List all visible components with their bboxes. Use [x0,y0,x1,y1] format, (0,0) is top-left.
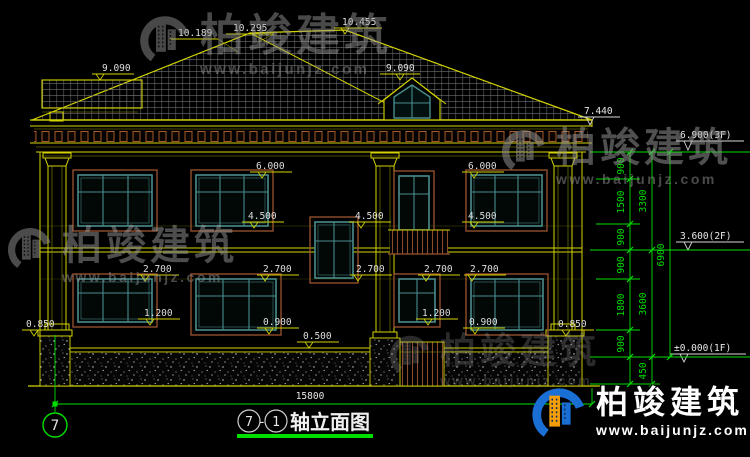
dim-1800: 1800 [616,293,627,316]
stair-window [310,217,358,283]
elev-sill-2f-right: 4.500 [468,211,497,222]
elev-win-top-1f-c: 2.700 [424,264,453,275]
elev-win-top-1f-b: 2.700 [263,264,292,275]
balcony-railing-2f [388,230,450,254]
dim-900-b: 900 [616,228,627,245]
elev-ridge-c: 10.455 [342,17,376,28]
foundation [28,352,600,386]
window-2f-left [73,170,157,231]
elev-floor2: 3.600(2F) [680,231,731,242]
cornice [30,120,592,152]
elev-sill-1f-right: 0.900 [469,317,498,328]
dim-1500: 1500 [616,190,627,213]
title-axis-end: 1 [272,415,280,430]
dim-900-c: 900 [616,256,627,273]
floor-level-markers: 6.900(3F) 3.600(2F) ±0.000(1F) [670,130,746,362]
elev-ridge-a: 10.189 [178,28,213,39]
axis-bubble-number: 7 [51,418,59,434]
title-text: 轴立面图 [290,410,370,434]
elev-win-top-2f-right: 6.000 [468,161,497,172]
left-roof-block [42,80,142,108]
elev-win-top-1f-a: 2.700 [143,264,172,275]
dentil-band [34,129,588,142]
elev-ridge-b: 10.295 [233,23,267,34]
elev-win-top-2f-left: 6.000 [256,161,285,172]
elev-floor1: ±0.000(1F) [674,343,731,354]
pedestal-right [548,336,582,386]
elev-pedestal-right: 0.850 [558,319,587,330]
dim-3600: 3600 [638,292,649,315]
dim-3300: 3300 [638,189,649,212]
elev-win-top-1f-d: 2.700 [470,264,499,275]
dim-900-d: 900 [616,335,627,352]
elevation-drawing: 9.090 10.189 10.295 10.455 9.090 7.440 6… [0,0,750,457]
title-underline [237,434,373,438]
elev-sill-1f-left: 1.200 [144,308,173,319]
roof [32,30,592,127]
title-axis-start: 7 [245,415,253,430]
dim-6900: 6900 [656,243,667,266]
elev-sill-2f-left: 4.500 [248,211,277,222]
elev-stair-win-bottom: 2.700 [356,264,385,275]
dim-15800: 15800 [296,391,325,402]
column-right [546,153,584,386]
drawing-title: 7 - 1 轴立面图 [237,410,373,438]
dim-900-a: 900 [616,157,627,174]
elev-floor3: 6.900(3F) [680,130,731,141]
axis-bubble-7: 7 [43,413,67,437]
pedestal-center [370,338,400,386]
cad-elevation-screenshot: 9.090 10.189 10.295 10.455 9.090 7.440 6… [0,0,750,457]
elev-stair-win-top: 4.500 [355,211,384,222]
elev-base-course: 0.500 [303,331,332,342]
balcony-door-2f [394,171,434,232]
elev-eave: 7.440 [584,106,613,117]
elev-sill-1f-mid: 0.900 [263,317,292,328]
elev-dormer: 9.090 [386,63,415,74]
elev-pedestal-left: 0.850 [26,319,55,330]
elev-roof-left: 9.090 [102,63,131,74]
dim-450: 450 [638,362,649,379]
elev-sill-1f-right-small: 1.200 [422,308,451,319]
